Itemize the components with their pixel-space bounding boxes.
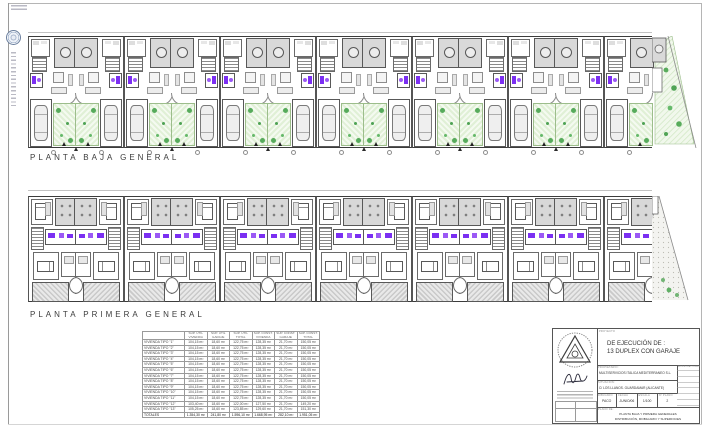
areas-row-label: TOTALES	[143, 412, 185, 418]
planta-baja-plan	[28, 36, 652, 148]
bath-fixture	[399, 78, 403, 82]
bath-fixture	[320, 76, 324, 84]
duplex-unit-ground	[268, 36, 316, 148]
areas-col-header	[143, 332, 185, 340]
garage	[414, 99, 436, 147]
duplex-unit-first	[556, 196, 604, 302]
living-dining	[367, 68, 394, 96]
terrace	[371, 282, 408, 302]
bathroom	[75, 229, 107, 245]
desk	[174, 256, 184, 264]
areas-value: 241,80 m²	[207, 412, 230, 418]
areas-table: SUP. ÚTILVIVIENDASUP. ÚTILGARAJESUP. ÚTI…	[142, 331, 320, 418]
sofa	[51, 87, 67, 94]
sheet-border	[701, 3, 702, 425]
drain-mark	[435, 150, 440, 155]
wardrobe	[333, 202, 339, 216]
dining-table	[629, 72, 640, 83]
margin-vertical-text	[11, 52, 16, 106]
dining-table	[88, 72, 99, 83]
car	[130, 105, 144, 141]
duplex-unit-ground	[364, 36, 412, 148]
bed	[386, 261, 403, 272]
desk	[270, 256, 280, 264]
stairs	[415, 227, 428, 250]
sideboard	[271, 74, 276, 86]
car	[226, 105, 240, 141]
front-garden	[149, 103, 173, 146]
stairs	[489, 57, 504, 72]
garage	[126, 99, 148, 147]
bedroom	[31, 199, 53, 225]
living-dining	[142, 68, 169, 96]
bath-fixture	[512, 76, 516, 84]
bedroom	[223, 199, 245, 225]
areas-value: 282,10 m²	[275, 412, 298, 418]
stairs	[511, 227, 524, 250]
duplex-unit-ground	[172, 36, 220, 148]
areas-header-row: SUP. ÚTILVIVIENDASUP. ÚTILGARAJESUP. ÚTI…	[143, 332, 320, 340]
entrance-arrow	[74, 147, 78, 151]
patio-table	[252, 47, 263, 58]
wardrobe	[389, 202, 395, 216]
visa-grid	[555, 401, 597, 422]
garage	[484, 99, 506, 147]
bathroom	[589, 73, 602, 88]
drain-mark	[195, 150, 200, 155]
wardrobe	[197, 202, 203, 216]
car	[584, 105, 598, 141]
drain-mark	[531, 150, 536, 155]
bay-window	[75, 277, 83, 294]
dining-table	[280, 72, 291, 83]
patio-table	[636, 47, 647, 58]
bathroom	[363, 229, 395, 245]
bathroom	[109, 73, 122, 88]
patio-void	[362, 198, 385, 226]
back-room	[127, 39, 146, 57]
bedroom	[417, 252, 443, 280]
bath-fixture	[325, 78, 329, 82]
entrance-arrow	[542, 142, 546, 146]
sheet-name-cell: PLANO DE: PLANTA BAJA Y PRIMERA GENERALE…	[597, 407, 699, 423]
bathroom	[397, 73, 410, 88]
bath-fixture	[212, 76, 216, 84]
bathroom	[267, 229, 299, 245]
bedroom	[459, 252, 475, 277]
desk	[256, 256, 266, 264]
terrace	[320, 282, 357, 302]
wardrobe	[581, 202, 587, 216]
bedroom	[573, 252, 599, 280]
living-dining	[271, 68, 298, 96]
patio-void	[554, 198, 577, 226]
dining-table	[53, 72, 64, 83]
wardrobe	[141, 202, 147, 216]
patio-table	[561, 47, 572, 58]
rear-patio	[74, 38, 98, 68]
bathroom	[429, 229, 461, 245]
sofa	[243, 87, 259, 94]
rear-patio	[458, 38, 482, 68]
stairs	[127, 227, 140, 250]
back-room	[390, 39, 409, 57]
living-dining	[622, 68, 649, 96]
stairs	[393, 57, 408, 72]
car	[296, 105, 310, 141]
revisions-cell: MODIFICACIONES	[677, 365, 699, 408]
field-num-plano: Nº PLANO 2	[658, 393, 677, 407]
duplex-unit-ground	[316, 36, 364, 148]
planta-baja-label: PLANTA BAJA GENERAL	[30, 153, 179, 162]
patio-table	[348, 47, 359, 58]
stairs	[319, 227, 332, 250]
stairs	[396, 227, 409, 250]
bathroom	[171, 229, 203, 245]
sofa	[147, 87, 163, 94]
bedroom	[511, 199, 533, 225]
drain-mark	[243, 150, 248, 155]
drain-mark	[627, 150, 632, 155]
wardrobe	[101, 202, 107, 216]
car	[200, 105, 214, 141]
sideboard	[260, 74, 265, 86]
stairs	[108, 227, 121, 250]
bath-fixture	[517, 78, 521, 82]
entrance-arrow	[254, 142, 258, 146]
desk	[544, 256, 554, 264]
front-garden	[363, 103, 387, 146]
car	[418, 105, 432, 141]
bed	[229, 261, 246, 272]
duplex-unit-first	[316, 196, 364, 302]
sofa	[85, 87, 101, 94]
duplex-unit-first	[508, 196, 556, 302]
bed	[394, 203, 405, 220]
back-room	[415, 39, 434, 57]
back-room	[511, 39, 530, 57]
bedroom	[415, 199, 437, 225]
bedroom	[93, 252, 119, 280]
living-dining	[238, 68, 265, 96]
car	[514, 105, 528, 141]
dining-table	[533, 72, 544, 83]
stairs	[320, 57, 335, 72]
site-value: C/ LOS LLANOS. GUARDAMAR (ALICANTE)	[599, 386, 664, 390]
car	[322, 105, 336, 141]
sideboard	[356, 74, 361, 86]
dining-table	[341, 72, 352, 83]
bath-fixture	[495, 78, 499, 82]
duplex-unit-first	[268, 196, 316, 302]
bathroom	[30, 73, 43, 88]
bedroom	[637, 252, 653, 277]
bath-fixture	[596, 76, 600, 84]
back-room	[607, 39, 626, 57]
sideboard	[79, 74, 84, 86]
bathroom	[205, 73, 218, 88]
bed	[194, 261, 211, 272]
bedroom	[555, 252, 571, 277]
rear-patio	[266, 38, 290, 68]
bathroom	[459, 229, 491, 245]
stairs	[416, 57, 431, 72]
plants	[536, 108, 541, 113]
terrace	[32, 282, 69, 302]
dining-table	[472, 72, 483, 83]
plants	[440, 108, 445, 113]
end-garden-drawing	[652, 36, 697, 148]
bath-fixture	[128, 76, 132, 84]
garage	[510, 99, 532, 147]
front-garden	[341, 103, 365, 146]
desk	[64, 256, 74, 264]
dimension-line: 104,90	[28, 190, 652, 191]
bed	[37, 261, 54, 272]
entrance-arrow	[638, 142, 642, 146]
front-garden	[555, 103, 579, 146]
areas-col-header: SUP. ÚTILVIVIENDA	[185, 332, 208, 340]
front-garden	[245, 103, 269, 146]
drain-mark	[339, 150, 344, 155]
bathroom	[126, 73, 139, 88]
bed	[578, 261, 595, 272]
sheet-name-line1: PLANTA BAJA Y PRIMERA GENERALES	[597, 412, 699, 416]
plants	[571, 108, 576, 113]
bath-fixture	[500, 76, 504, 84]
bedroom	[195, 199, 217, 225]
field-escala: ESCALA 1/100	[638, 393, 658, 407]
bathroom	[318, 73, 331, 88]
terrace	[563, 282, 600, 302]
bathroom	[237, 229, 269, 245]
project-title-line2: 13 DUPLEX CON GARAJE	[607, 349, 680, 355]
front-garden	[75, 103, 99, 146]
living-dining	[175, 68, 202, 96]
stairs	[128, 57, 143, 72]
seal-micro-text	[557, 391, 593, 399]
stairs	[585, 57, 600, 72]
sofa	[469, 87, 485, 94]
field-dibujado: DIBUJADO PACO	[597, 393, 617, 407]
desk	[640, 256, 650, 264]
areas-value: 1.951,05 m²	[297, 412, 320, 418]
patio-table	[156, 47, 167, 58]
stairs	[512, 57, 527, 72]
revisions-label: MODIFICACIONES	[678, 366, 700, 368]
sofa	[565, 87, 581, 94]
bed	[106, 203, 117, 220]
drain-mark	[387, 150, 392, 155]
bathroom	[525, 229, 557, 245]
bedroom	[99, 199, 121, 225]
areas-col-header: SUP. CONST.TOTAL	[297, 332, 320, 340]
desk	[462, 256, 472, 264]
bed	[490, 203, 501, 220]
duplex-unit-ground	[556, 36, 604, 148]
stairs	[201, 57, 216, 72]
stairs	[31, 227, 44, 250]
planta-baja-endcap	[652, 36, 697, 148]
project-label: PROYECTO	[599, 330, 615, 333]
car	[34, 105, 48, 141]
areas-col-header: SUP. CONST.VIVIENDA	[252, 332, 275, 340]
duplex-unit-first	[412, 196, 460, 302]
stairs	[492, 227, 505, 250]
stairs	[223, 227, 236, 250]
front-garden	[459, 103, 483, 146]
bath-fixture	[613, 78, 617, 82]
drain-mark	[579, 150, 584, 155]
rear-patio	[170, 38, 194, 68]
bedroom	[225, 252, 251, 280]
garage	[196, 99, 218, 147]
terrace	[608, 282, 645, 302]
bay-window	[555, 277, 563, 294]
duplex-unit-first	[172, 196, 220, 302]
owner-cell: PROPIETARIO: MULTISERVICIOS ITALICA MEDI…	[597, 365, 678, 381]
bathroom	[222, 73, 235, 88]
living-dining	[559, 68, 586, 96]
patio-table	[540, 47, 551, 58]
car	[610, 105, 624, 141]
plants	[248, 108, 253, 113]
areas-col-header: SUP. ÚTILTOTAL	[230, 332, 253, 340]
desk	[558, 256, 568, 264]
sheet-name-line2: DISTRIBUCIÓN, MOBILIARIO Y SUPERFICIES	[597, 417, 699, 421]
entrance-arrow	[458, 147, 462, 151]
terrace	[128, 282, 165, 302]
stairs	[224, 57, 239, 72]
duplex-unit-first	[604, 196, 652, 302]
desk	[160, 256, 170, 264]
car	[488, 105, 502, 141]
bay-window	[267, 277, 275, 294]
sideboard	[559, 74, 564, 86]
terrace	[467, 282, 504, 302]
bed	[325, 261, 342, 272]
bedroom	[129, 252, 155, 280]
bed	[517, 261, 534, 272]
entrance-arrow	[278, 142, 282, 146]
entrance-arrow	[86, 142, 90, 146]
sideboard	[367, 74, 372, 86]
wardrobe	[525, 202, 531, 216]
owner-value: MULTISERVICIOS ITALICA MEDITERRANEO S.L.	[599, 371, 671, 375]
rear-patio	[630, 38, 654, 68]
living-dining	[463, 68, 490, 96]
garage	[100, 99, 122, 147]
planta-primera-label: PLANTA PRIMERA GENERAL	[30, 310, 205, 319]
areas-value: 1.354,30 m²	[185, 412, 208, 418]
planta-primera-plan	[28, 196, 652, 302]
bedroom	[189, 252, 215, 280]
sheet-name-label: PLANO DE:	[598, 408, 614, 411]
sideboard	[548, 74, 553, 86]
bathroom	[510, 73, 523, 88]
patio-table	[177, 47, 188, 58]
back-room	[102, 39, 121, 57]
bed	[421, 261, 438, 272]
patio-void	[74, 198, 97, 226]
entrance-arrow	[182, 142, 186, 146]
garage	[388, 99, 410, 147]
garage	[222, 99, 244, 147]
patio-void	[170, 198, 193, 226]
duplex-unit-first	[220, 196, 268, 302]
bathroom	[45, 229, 77, 245]
project-title-line1: DE EJECUCIÓN DE :	[607, 341, 665, 347]
stairs	[588, 227, 601, 250]
car	[104, 105, 118, 141]
owner-label: PROPIETARIO:	[598, 366, 619, 369]
bathroom	[301, 73, 314, 88]
bedroom	[483, 199, 505, 225]
plants	[283, 108, 288, 113]
dining-table	[149, 72, 160, 83]
back-room	[31, 39, 50, 57]
patio-table	[369, 47, 380, 58]
bedroom	[387, 199, 409, 225]
stairs	[297, 57, 312, 72]
areas-value: 1.596,10 m²	[230, 412, 253, 418]
entrance-arrow	[566, 142, 570, 146]
bath-fixture	[421, 78, 425, 82]
wardrobe	[293, 202, 299, 216]
areas-value: 1.668,95 m²	[252, 412, 275, 418]
bed	[98, 261, 115, 272]
stairs	[32, 57, 47, 72]
sideboard	[463, 74, 468, 86]
front-garden	[267, 103, 291, 146]
sofa	[435, 87, 451, 94]
bath-fixture	[37, 78, 41, 82]
stairs	[204, 227, 217, 250]
bay-window	[459, 277, 467, 294]
patio-void	[458, 198, 481, 226]
stairs	[608, 57, 623, 72]
patio-table	[444, 47, 455, 58]
bedroom	[171, 252, 187, 277]
bedroom	[381, 252, 407, 280]
living-dining	[430, 68, 457, 96]
front-garden	[437, 103, 461, 146]
plants	[344, 108, 349, 113]
front-garden	[533, 103, 557, 146]
sofa	[531, 87, 547, 94]
bathroom	[555, 229, 587, 245]
bedroom	[579, 199, 601, 225]
entrance-arrow	[266, 147, 270, 151]
bath-fixture	[416, 76, 420, 84]
terrace	[179, 282, 216, 302]
sideboard	[644, 74, 649, 86]
back-room	[198, 39, 217, 57]
entrance-arrow	[350, 142, 354, 146]
sofa	[373, 87, 389, 94]
wardrobe	[621, 202, 627, 216]
bathroom	[414, 73, 427, 88]
patio-table	[465, 47, 476, 58]
bedroom	[127, 199, 149, 225]
end-ground-drawing	[652, 196, 690, 302]
bath-fixture	[207, 78, 211, 82]
terrace	[83, 282, 120, 302]
sofa	[277, 87, 293, 94]
bedroom	[607, 199, 629, 225]
entrance-arrow	[158, 142, 162, 146]
bay-window	[171, 277, 179, 294]
